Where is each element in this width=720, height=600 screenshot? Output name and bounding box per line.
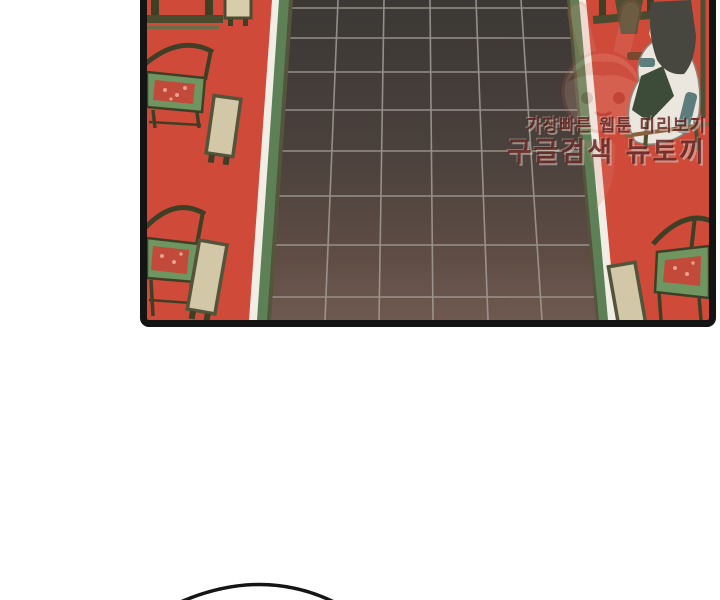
- panel-artwork: [147, 0, 709, 320]
- armchair-left-upper: [147, 45, 213, 128]
- stool-top-left: [225, 0, 251, 26]
- comic-panel: 가장빠른 웹툰 미리보기 구글검색 뉴토끼: [140, 0, 716, 327]
- table-top-left: [147, 0, 223, 29]
- floor: [249, 0, 616, 320]
- bench-left-upper: [205, 95, 241, 165]
- speech-bubble-arc: [140, 560, 440, 600]
- left-furniture-group: [147, 0, 251, 320]
- floor-tiles: [271, 0, 596, 320]
- character-cuff: [639, 58, 655, 67]
- armchair-right-lower: [653, 216, 709, 320]
